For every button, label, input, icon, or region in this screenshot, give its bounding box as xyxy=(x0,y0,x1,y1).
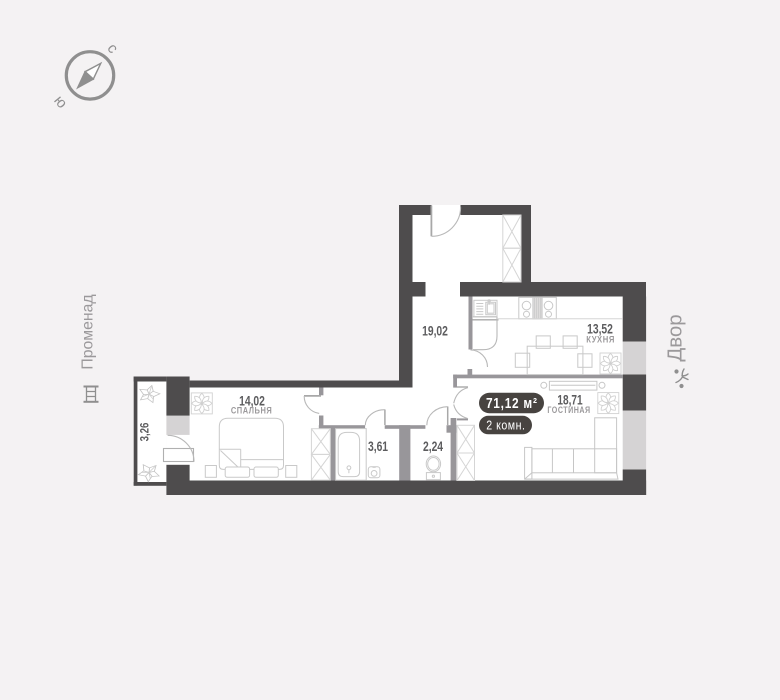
svg-text:КУХНЯ: КУХНЯ xyxy=(586,334,615,345)
svg-text:ГОСТИНАЯ: ГОСТИНАЯ xyxy=(547,404,590,415)
svg-text:2 комн.: 2 комн. xyxy=(486,417,525,432)
svg-text:3,26: 3,26 xyxy=(139,423,152,442)
svg-text:71,12 м²: 71,12 м² xyxy=(486,395,538,411)
svg-text:Двор: Двор xyxy=(664,314,687,361)
svg-text:2,24: 2,24 xyxy=(423,439,443,455)
svg-text:19,02: 19,02 xyxy=(422,323,448,339)
svg-text:Променад: Променад xyxy=(80,294,97,369)
svg-text:СПАЛЬНЯ: СПАЛЬНЯ xyxy=(231,405,272,416)
svg-text:3,61: 3,61 xyxy=(368,439,388,455)
